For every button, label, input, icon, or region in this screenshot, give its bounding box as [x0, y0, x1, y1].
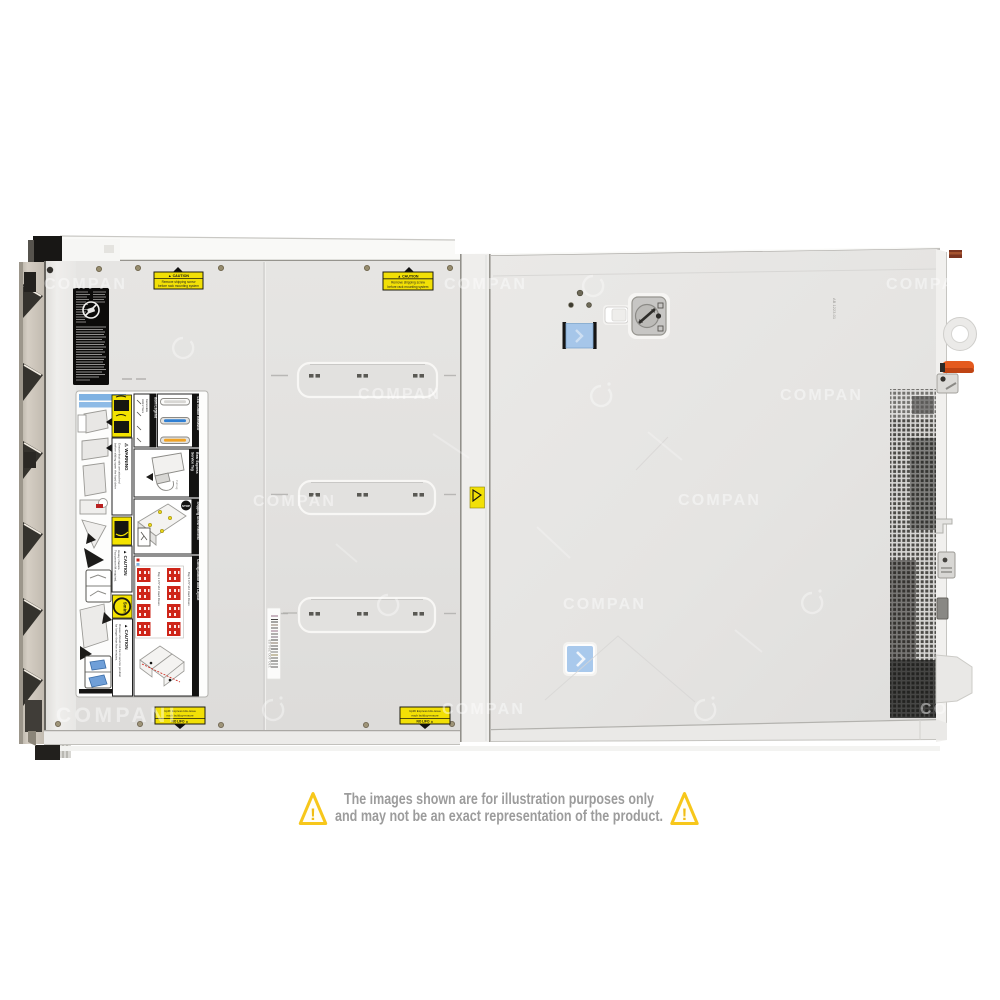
svg-text:Rear Express: Rear Express [195, 452, 199, 474]
svg-text:Uplift Express kits-issue: Uplift Express kits-issue [409, 709, 441, 713]
svg-text:▲ CAUTION: ▲ CAUTION [123, 550, 128, 576]
svg-text:Hold 2 Secs: Hold 2 Secs [141, 399, 145, 414]
svg-text:Bay 5 3.5" x12 Hard Drives: Bay 5 3.5" x12 Hard Drives [187, 572, 191, 606]
svg-text:COMPAN: COMPAN [358, 386, 441, 403]
svg-text:Item Legend: Item Legend [154, 397, 158, 418]
svg-text:Two person lift required.: Two person lift required. [114, 550, 118, 582]
svg-text:!: ! [310, 805, 316, 824]
svg-text:COMPAN: COMPAN [886, 276, 969, 293]
svg-text:COMPAN: COMPAN [253, 493, 336, 510]
svg-text:COMPAN: COMPAN [44, 276, 127, 293]
svg-text:Configuration and Layout: Configuration and Layout [196, 559, 200, 601]
svg-text:5min: 5min [123, 602, 128, 613]
svg-text:Shipping Screw Removal: Shipping Screw Removal [196, 502, 200, 540]
svg-text:before rack mounting system: before rack mounting system [158, 284, 199, 288]
svg-text:NO LIFO ▲: NO LIFO ▲ [417, 720, 434, 724]
svg-text:STOP: STOP [182, 504, 190, 508]
svg-text:before rack mounting system: before rack mounting system [388, 285, 429, 289]
svg-text:each buildup-ensure: each buildup-ensure [411, 714, 439, 718]
svg-text:and may not be an exact repres: and may not be an exact representation o… [335, 808, 663, 825]
svg-text:Bay 1 3.5" x12 Hard Drives: Bay 1 3.5" x12 Hard Drives [157, 572, 161, 606]
svg-text:Service Tag: Service Tag [191, 452, 195, 471]
svg-text:▲ CAUTION: ▲ CAUTION [168, 274, 189, 278]
svg-text:COMPAN: COMPAN [780, 387, 863, 404]
svg-text:COMPAN: COMPAN [442, 701, 525, 718]
svg-text:COMPANI: COMPANI [56, 704, 178, 727]
svg-text:COMPAN: COMPAN [678, 492, 761, 509]
svg-text:COMPAN: COMPAN [563, 596, 646, 613]
svg-text:▲ CAUTION: ▲ CAUTION [398, 274, 419, 278]
svg-text:COMPAN: COMPAN [920, 701, 1000, 718]
svg-text:130-400-294-03: 130-400-294-03 [267, 639, 272, 668]
svg-text:Pull tag: Pull tag [175, 480, 179, 490]
svg-text:AB 1223-01: AB 1223-01 [832, 298, 837, 320]
svg-text:⚠ WARNING: ⚠ WARNING [124, 443, 129, 471]
svg-text:!: ! [682, 805, 688, 824]
svg-text:before sliding open the hard d: before sliding open the hard drive [114, 443, 118, 489]
svg-text:Removable: Removable [145, 399, 149, 413]
svg-text:LED Button Behavior: LED Button Behavior [196, 397, 200, 432]
svg-text:The images shown are for illus: The images shown are for illustration pu… [344, 791, 654, 808]
svg-text:▲ CAUTION: ▲ CAUTION [124, 624, 129, 650]
svg-text:COMPAN: COMPAN [444, 276, 527, 293]
svg-text:for longer than five minutes.: for longer than five minutes. [115, 624, 119, 661]
